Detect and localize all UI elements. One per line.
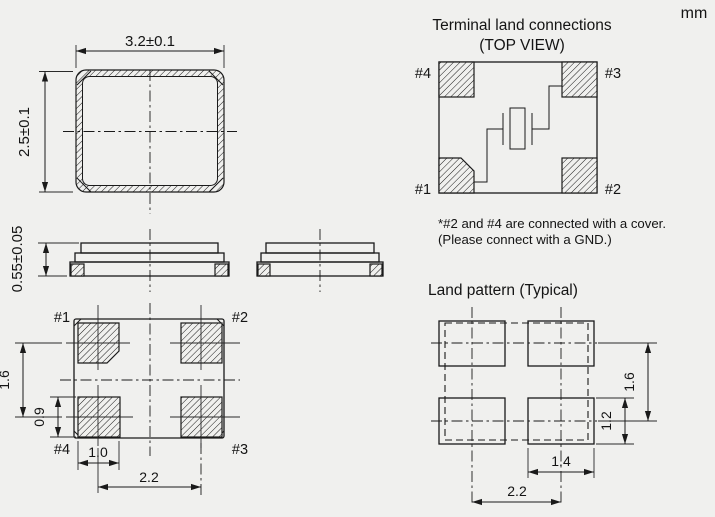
bottom-pad-1-label: #1 <box>54 310 70 326</box>
datasheet-drawing-page: mm 3.2±0.1 2.5±0.1 0.55±0.05 <box>0 0 715 517</box>
land-pattern-title: Land pattern (Typical) <box>428 282 578 299</box>
land-dim-2_2-text: 2.2 <box>507 483 527 499</box>
top-view-height-dim-text: 2.5±0.1 <box>16 107 33 157</box>
bottom-pad-3-label: #3 <box>232 442 248 458</box>
terminal-pad-4 <box>439 62 474 97</box>
terminal-pad-4-label: #4 <box>415 66 431 82</box>
unit-label: mm <box>681 5 708 22</box>
terminal-pad-2 <box>562 158 597 193</box>
terminal-pad-1-label: #1 <box>415 182 431 198</box>
terminal-title: Terminal land connections <box>432 17 611 34</box>
terminal-pad-3 <box>562 62 597 97</box>
bottom-dim-2_2-text: 2.2 <box>139 469 159 485</box>
top-view-width-dim-text: 3.2±0.1 <box>125 33 175 50</box>
terminal-note-line2: (Please connect with a GND.) <box>438 232 612 247</box>
bottom-dim-0_9-text: 0.9 <box>31 407 47 427</box>
bottom-pad-2-label: #2 <box>232 310 248 326</box>
terminal-subtitle: (TOP VIEW) <box>479 37 565 54</box>
bottom-dim-1_6-text: 1.6 <box>0 370 12 390</box>
land-dim-1_2-text: 1.2 <box>598 411 614 431</box>
land-dim-1_4-text: 1.4 <box>551 453 571 469</box>
terminal-note-line1: *#2 and #4 are connected with a cover. <box>438 216 666 231</box>
side2-pad-right <box>370 264 382 276</box>
terminal-pad-2-label: #2 <box>605 182 621 198</box>
terminal-pad-3-label: #3 <box>605 66 621 82</box>
side1-pad-left <box>71 264 84 276</box>
side1-height-dim-text: 0.55±0.05 <box>9 226 26 293</box>
side2-pad-left <box>258 264 270 276</box>
side1-pad-right <box>215 264 228 276</box>
bottom-pad-4-label: #4 <box>54 442 70 458</box>
land-dim-1_6-text: 1.6 <box>621 372 637 392</box>
package-drawing-svg: mm 3.2±0.1 2.5±0.1 0.55±0.05 <box>0 0 715 517</box>
